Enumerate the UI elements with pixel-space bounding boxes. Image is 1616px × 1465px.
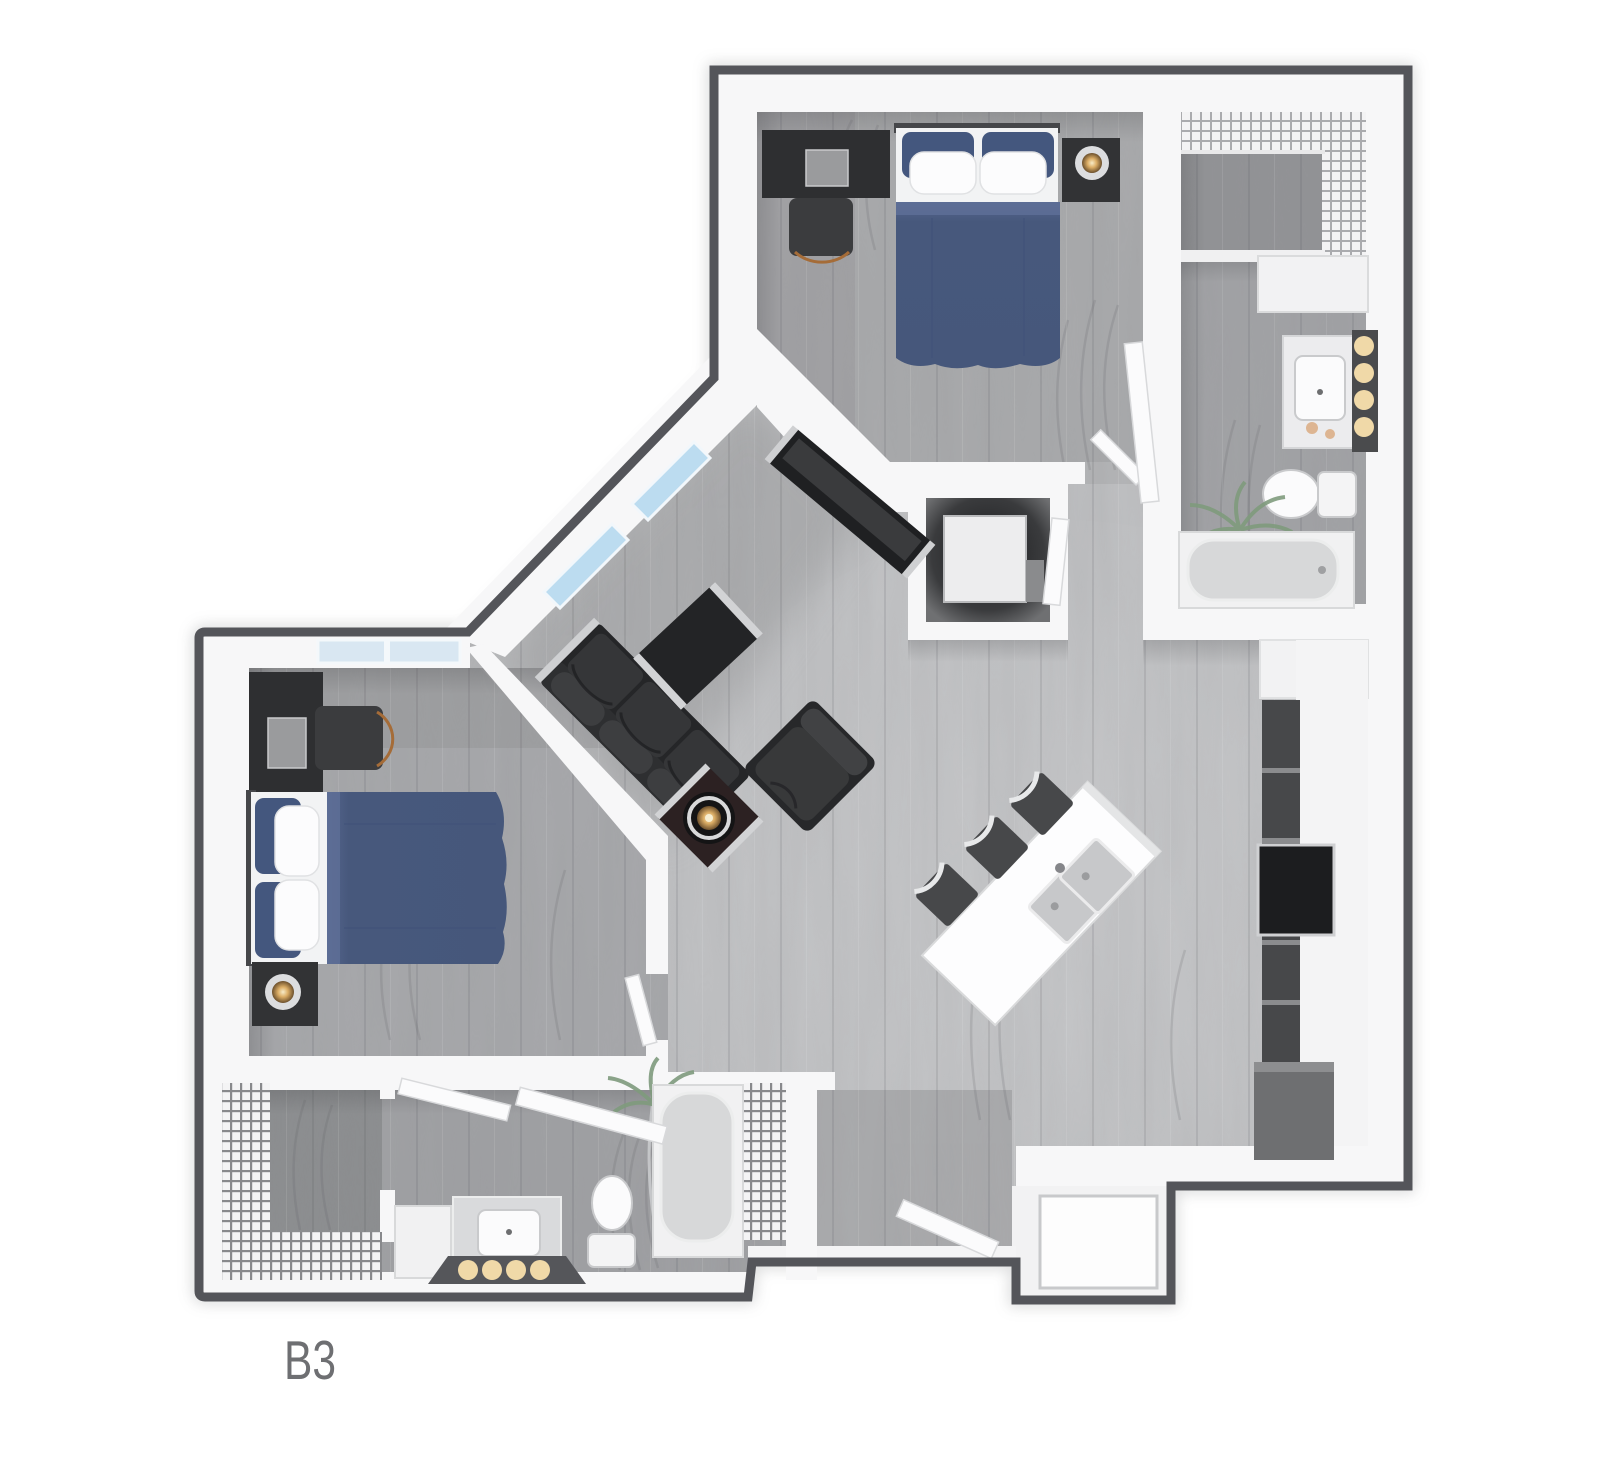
svg-text:B3: B3 (284, 1329, 336, 1391)
